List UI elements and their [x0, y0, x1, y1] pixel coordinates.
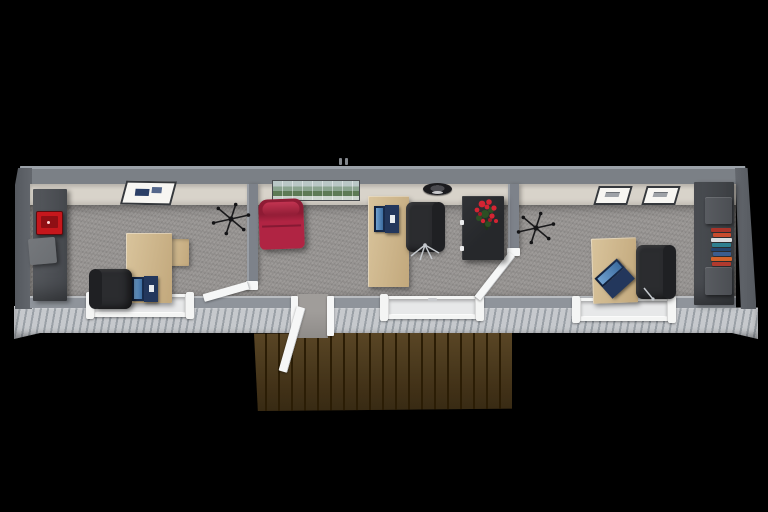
book-spine [711, 257, 732, 261]
book-spine [711, 238, 732, 242]
window-handle [428, 298, 437, 301]
flower-bouquet [468, 194, 506, 240]
art-shape [151, 187, 162, 193]
wall-art-left-office [120, 181, 177, 206]
red-lounge-chair [258, 198, 305, 250]
storage-box [28, 237, 57, 265]
book-spine [713, 252, 731, 256]
laptop-sticker [390, 215, 395, 223]
laptop-screen [134, 279, 142, 299]
laptop-base [144, 276, 158, 302]
laptop-sticker [149, 285, 154, 292]
ceiling-fan-left [209, 199, 253, 239]
chair-base-center [408, 236, 442, 262]
laptop-base [385, 205, 399, 233]
right-end-wall [735, 168, 756, 309]
wall-frame-2 [641, 186, 680, 205]
window-center-office [382, 296, 482, 319]
book-spine [711, 248, 731, 252]
window-sill [389, 299, 475, 315]
wall-clock [423, 183, 452, 195]
book-spine [712, 262, 731, 266]
ceiling-fan-right [514, 208, 558, 248]
lounge-cushion [262, 201, 299, 216]
roof-vent [345, 158, 348, 165]
frame-glyph [605, 192, 620, 197]
drawer-top [705, 197, 732, 224]
office-chair-left [92, 269, 132, 309]
hinge [460, 220, 464, 225]
window-cap [668, 296, 676, 323]
chair-back [89, 269, 102, 309]
wall-frame-1 [593, 186, 632, 205]
chair-back [663, 245, 676, 299]
printer-light [47, 221, 50, 224]
book-spine [713, 233, 731, 237]
hinge [460, 246, 464, 251]
book-spine [711, 228, 731, 232]
laptop-left-office [132, 276, 159, 302]
window-cap [380, 294, 388, 321]
laptop-lid [374, 206, 385, 232]
book-spine [712, 243, 731, 247]
laptop-lid [132, 277, 144, 301]
floorplan-render [0, 0, 768, 512]
frame-glyph [653, 192, 668, 197]
laptop-center-office [374, 205, 401, 233]
art-shape [135, 189, 150, 196]
roof-vent [339, 158, 342, 165]
chair-base-right [640, 286, 660, 302]
entry-jamb-right [327, 296, 334, 336]
window-cap [186, 292, 194, 319]
red-printer [36, 211, 63, 235]
window-cap [572, 296, 580, 323]
drawer-bottom [705, 267, 732, 295]
lounge-seam [262, 224, 301, 227]
laptop-screen [376, 208, 383, 230]
book-stack [711, 228, 732, 266]
